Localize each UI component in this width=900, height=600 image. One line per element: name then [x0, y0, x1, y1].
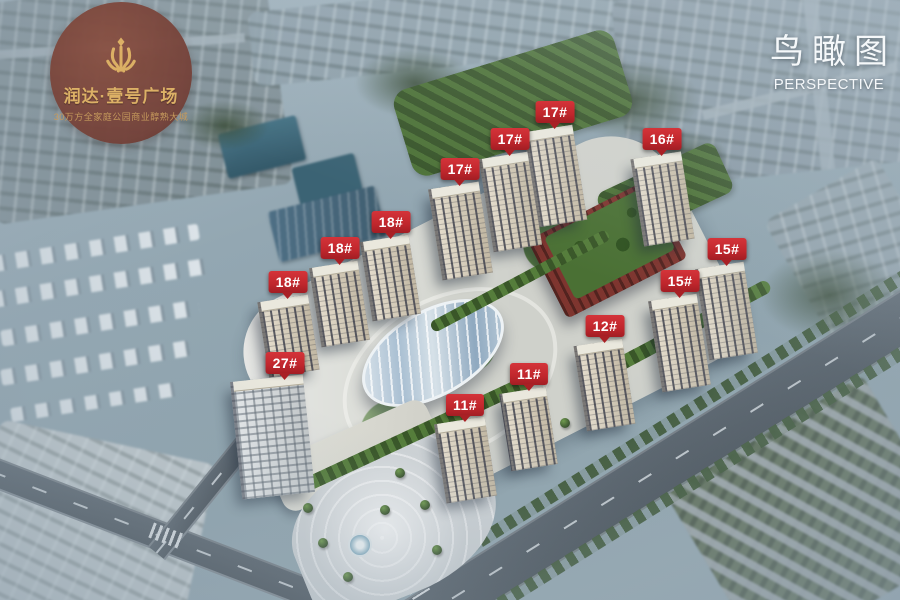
building-badge-18: 18# — [269, 271, 308, 293]
building-badge-12: 12# — [586, 315, 625, 337]
building-badge-17: 17# — [441, 158, 480, 180]
building-badge-11: 11# — [446, 394, 484, 416]
building-badge-27: 27# — [266, 352, 305, 374]
building-badge-17: 17# — [491, 128, 530, 150]
building-badge-17: 17# — [536, 101, 575, 123]
logo-name: 润达·壹号广场 — [64, 82, 179, 107]
building-badge-15: 15# — [708, 238, 747, 260]
title-english: PERSPECTIVE — [770, 76, 888, 93]
logo-runda: 润达·壹号广场 30万方全家庭公园商业醇熟大城 — [50, 2, 192, 144]
building-badge-18: 18# — [372, 211, 411, 233]
building-badge-18: 18# — [321, 237, 360, 259]
runda-emblem-icon — [97, 34, 145, 78]
building-badge-15: 15# — [661, 270, 700, 292]
aerial-rendering: 17#17#17#16#18#18#18#15#15#12#27#11#11# … — [0, 0, 900, 600]
building-badge-16: 16# — [643, 128, 682, 150]
building-badge-11: 11# — [510, 363, 548, 385]
title-chinese: 鸟瞰图 — [770, 24, 896, 73]
view-title: 鸟瞰图 PERSPECTIVE — [770, 24, 888, 93]
logo-tagline: 30万方全家庭公园商业醇熟大城 — [54, 110, 189, 123]
